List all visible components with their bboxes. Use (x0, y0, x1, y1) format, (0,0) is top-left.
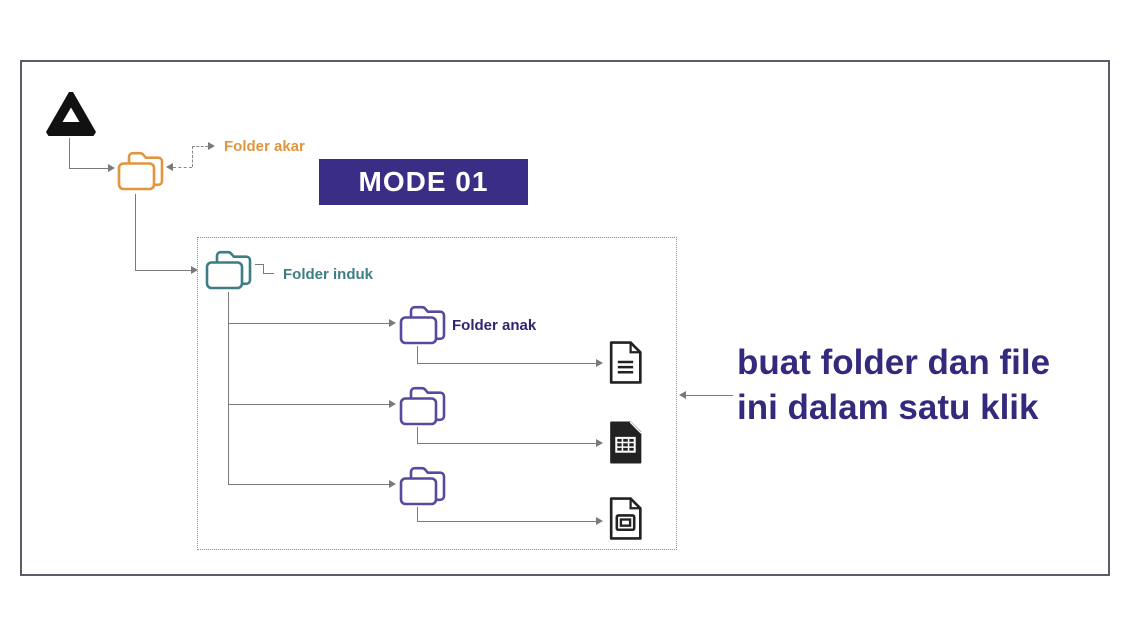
branch-line-1 (228, 323, 389, 324)
mode-banner: MODE 01 (319, 159, 528, 205)
mode-banner-label: MODE 01 (359, 166, 489, 198)
tree-trunk-line (228, 292, 229, 484)
connector-drive-vertical (69, 138, 70, 168)
arrowhead-file-2 (596, 439, 603, 447)
arrowhead-to-root-folder (108, 164, 115, 172)
doc-file-icon (607, 340, 644, 385)
file-elbow-v-3 (417, 507, 418, 521)
caption-text: buat folder dan file ini dalam satu klik (737, 340, 1050, 430)
caption-line-1: buat folder dan file (737, 340, 1050, 385)
slides-file-icon (607, 496, 644, 541)
file-elbow-h-3 (417, 521, 596, 522)
dashed-connector-h2 (192, 146, 208, 147)
child-folder-icon-1 (397, 302, 447, 346)
parent-folder-icon (203, 247, 253, 291)
arrowhead-file-3 (596, 517, 603, 525)
parent-label-elbow-h1 (255, 264, 263, 265)
file-elbow-v-2 (417, 427, 418, 443)
file-elbow-h-2 (417, 443, 596, 444)
file-elbow-h-1 (417, 363, 596, 364)
arrowhead-caption (679, 391, 686, 399)
arrowhead-branch-3 (389, 480, 396, 488)
root-folder-label: Folder akar (224, 138, 305, 155)
connector-drive-horizontal (69, 168, 108, 169)
parent-label-elbow-h2 (263, 273, 274, 274)
connector-root-vertical (135, 194, 136, 270)
caption-connector-line (686, 395, 733, 396)
dashed-connector-v (192, 146, 193, 167)
child-folder-icon-3 (397, 463, 447, 507)
arrowhead-branch-2 (389, 400, 396, 408)
google-drive-icon (46, 91, 96, 137)
root-folder-icon (115, 148, 165, 192)
arrowhead-dashed-right (208, 142, 215, 150)
parent-label-elbow-v (263, 264, 264, 273)
branch-line-3 (228, 484, 389, 485)
arrowhead-dashed-left (166, 163, 173, 171)
child-folder-icon-2 (397, 383, 447, 427)
spreadsheet-file-icon (607, 420, 644, 465)
slide: Folder akar MODE 01 Folder induk Folder … (0, 0, 1140, 622)
parent-folder-label: Folder induk (283, 266, 373, 283)
arrowhead-branch-1 (389, 319, 396, 327)
dashed-connector-h1 (173, 167, 192, 168)
connector-root-horizontal (135, 270, 191, 271)
child-folder-label: Folder anak (452, 317, 536, 334)
arrowhead-file-1 (596, 359, 603, 367)
file-elbow-v-1 (417, 346, 418, 363)
caption-line-2: ini dalam satu klik (737, 385, 1050, 430)
branch-line-2 (228, 404, 389, 405)
